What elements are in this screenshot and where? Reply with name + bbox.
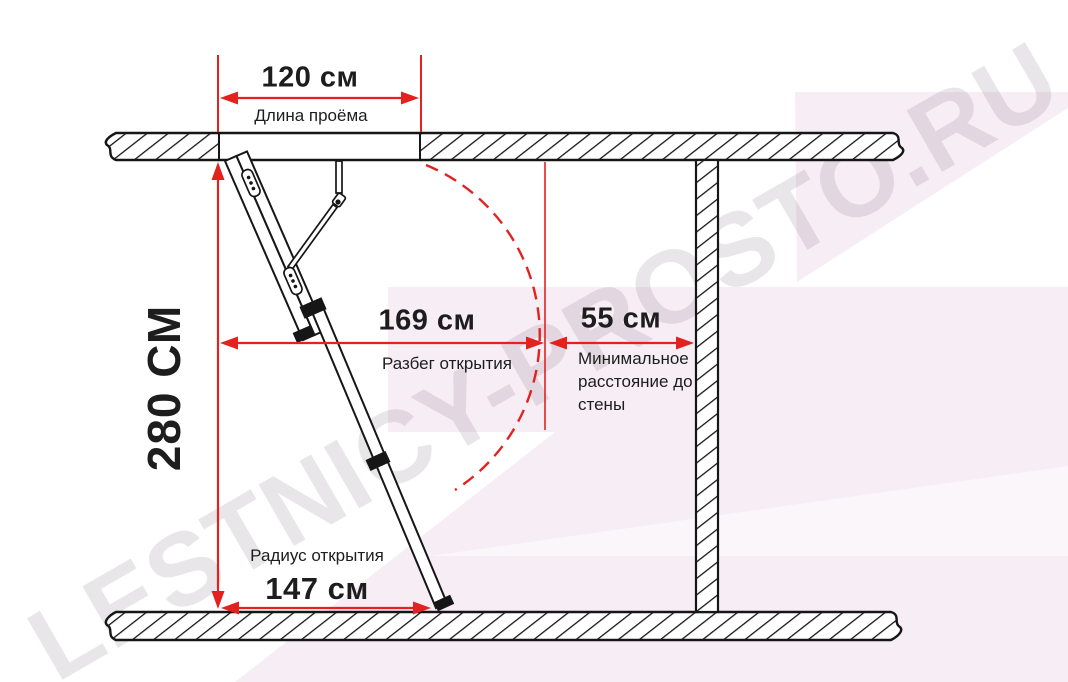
spring-rod xyxy=(336,161,342,193)
diagram-canvas: LESTNICY-PROSTO.RU xyxy=(0,0,1068,682)
strut-upper-joint xyxy=(335,199,340,204)
attic-ladder-dimensions-diagram: LESTNICY-PROSTO.RU xyxy=(0,0,1068,682)
floor-slab xyxy=(106,612,901,640)
wall xyxy=(696,160,718,612)
dim-opening-length xyxy=(220,92,419,105)
spring-strut xyxy=(288,205,337,270)
